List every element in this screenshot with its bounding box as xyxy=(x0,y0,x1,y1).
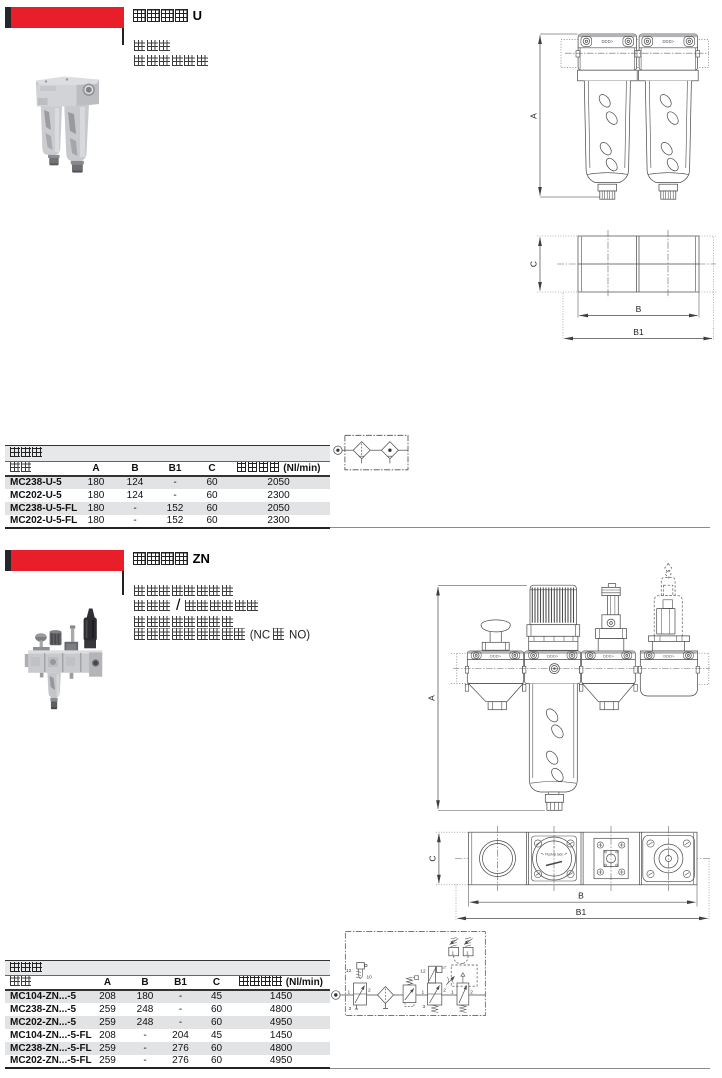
svg-text:B: B xyxy=(578,891,584,901)
svg-text:A: A xyxy=(529,113,539,119)
svg-text:B: B xyxy=(636,304,642,314)
svg-text:1: 1 xyxy=(348,990,351,996)
svg-text:12: 12 xyxy=(420,969,426,975)
svg-text:10: 10 xyxy=(367,975,373,981)
svg-text:1: 1 xyxy=(451,990,454,996)
svg-text:C: C xyxy=(427,855,437,861)
svg-text:Push to lock: Push to lock xyxy=(545,853,563,857)
svg-text:DDD>: DDD> xyxy=(602,39,614,44)
svg-text:3: 3 xyxy=(423,1004,426,1010)
svg-text:DDD>: DDD> xyxy=(663,39,675,44)
svg-text:2: 2 xyxy=(368,988,371,994)
svg-text:A: A xyxy=(427,695,437,701)
svg-text:1: 1 xyxy=(466,951,469,957)
svg-text:C: C xyxy=(529,261,539,267)
svg-text:DDD>: DDD> xyxy=(603,654,615,659)
svg-text:B1: B1 xyxy=(576,907,587,917)
svg-text:1: 1 xyxy=(422,990,425,996)
svg-text:1: 1 xyxy=(452,951,455,957)
svg-text:2: 2 xyxy=(443,988,446,994)
svg-text:3: 3 xyxy=(349,1006,352,1012)
svg-text:DDD>: DDD> xyxy=(663,654,675,659)
svg-text:B1: B1 xyxy=(633,327,644,337)
svg-text:2: 2 xyxy=(470,990,473,996)
svg-text:DDD>: DDD> xyxy=(547,654,559,659)
svg-text:12: 12 xyxy=(346,968,352,974)
svg-text:DDD>: DDD> xyxy=(490,654,502,659)
